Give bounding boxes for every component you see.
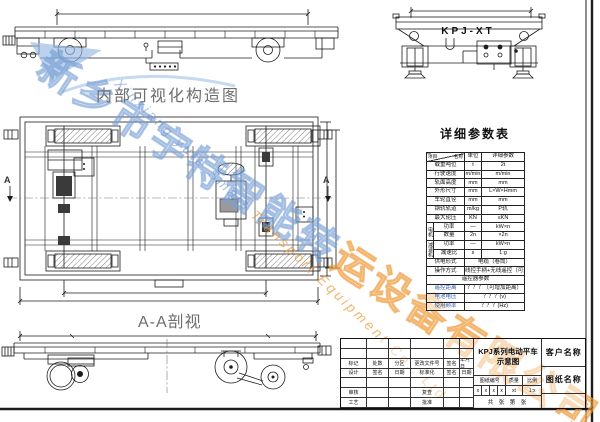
param-row-motor: 电机 功率—kW×n [427,223,525,232]
param-table: 名称项目 单位详细参数 载重吨位t2t 行驶速度m/minm/min 轨面高度m… [426,152,525,311]
section-marker-right: A [323,175,330,185]
sheet-name-label: 图纸名称 [542,366,585,394]
drawing-no-value-row: x x x x xt 1:x [474,386,541,396]
param-row-operate: 操作方式线控手柄+无线遥控（可选） [427,267,525,276]
sheet-count: 共 张 第 张 [474,396,541,408]
param-header-row: 名称项目 单位详细参数 [427,153,525,162]
param-row: 最大轮压KN≤KN [427,214,525,223]
param-row: 轨面高度mmmm [427,179,525,188]
param-row: 外形尺寸mmL×W×Hmm [427,188,525,197]
param-row: 行驶速度m/minm/min [427,170,525,179]
side-elevation-top [3,9,338,70]
param-row: 载重吨位t2t [427,161,525,170]
end-elevation [393,7,545,78]
param-row: 钢轨轨道m/kgP轨 [427,205,525,214]
internal-view-label: 内部可视化构造图 [96,82,240,106]
section-view-label: A-A剖视 [138,308,202,332]
end-view-model-label: KPJ-XT [428,26,508,37]
param-row-supply: 供电形式电缆（卷筒） [427,258,525,267]
title-block-empty-cell [542,393,585,408]
title-block-right: 客户名称 图纸名称 [542,339,585,408]
cad-sheet: 新乡市宇特智能转运设备有限公司 Xinxiang yute Smart Tran… [0,0,600,422]
param-row-remote: 使用频率？？？(Hz) [427,302,525,311]
title-block-middle: KPJ系列电动平车 示意图 图纸编号 质量 比例 x x x x xt 1:x … [474,339,542,408]
drawing-no-header-row: 图纸编号 质量 比例 [474,376,541,386]
param-row-remote: 电池电压？？？(v) [427,293,525,302]
param-table-title: 详细参数表 [426,125,524,142]
param-row-reducer: 减速比s1:g [427,249,525,258]
drawing-title: KPJ系列电动平车 示意图 [474,339,541,376]
param-remote-header: 遥控器参数 [427,276,525,285]
title-block-revision-grid: 标记处数分区更改文件号签名年月日 设计签名日期标准化签名日期 审核复查 工艺批准 [341,339,474,408]
param-row-motor: 数量2n×2n [427,232,525,241]
section-marker-left: A [4,175,11,185]
param-row-remote: 遥控距离？？？（可增加距离） [427,284,525,293]
section-elevation [2,331,331,393]
customer-name-label: 客户名称 [542,339,585,366]
plan-view [4,117,340,305]
param-row-reducer: 减速机 功率—kW×n [427,240,525,249]
title-block: 标记处数分区更改文件号签名年月日 设计签名日期标准化签名日期 审核复查 工艺批准… [340,338,586,409]
param-row: 车轮直径mmmm [427,196,525,205]
